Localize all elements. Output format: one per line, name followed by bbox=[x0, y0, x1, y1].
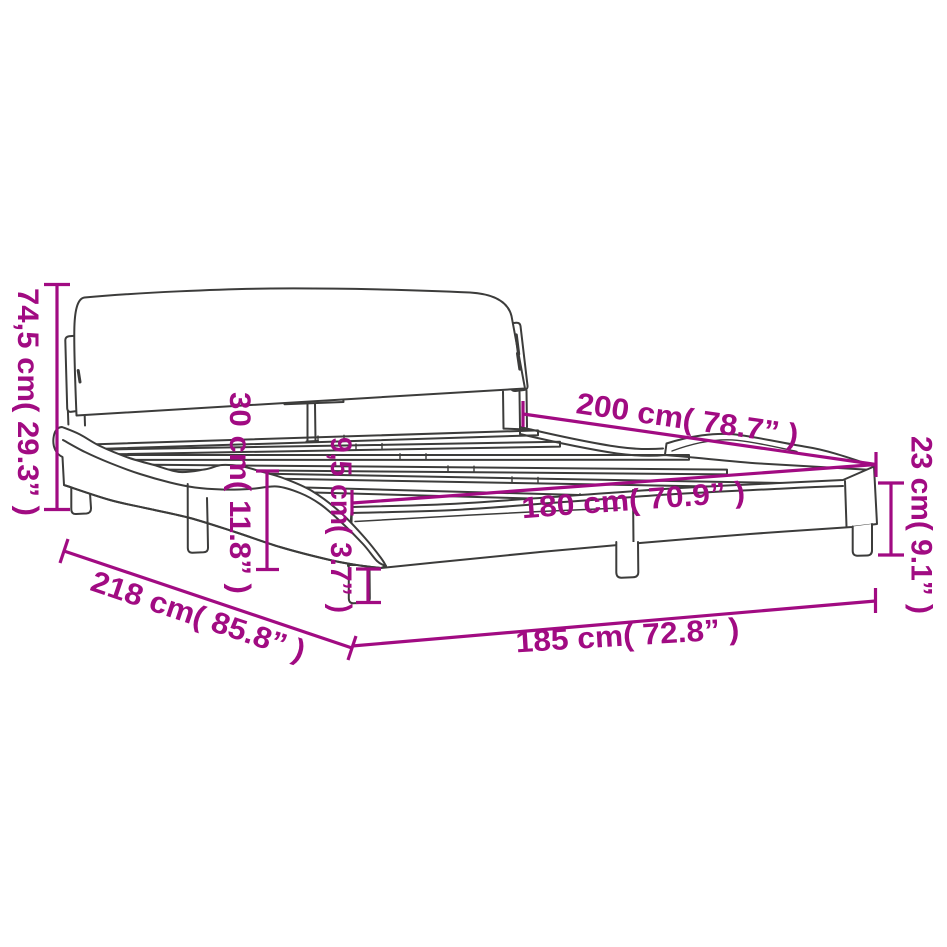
svg-text:185 cm( 72.8” ): 185 cm( 72.8” ) bbox=[515, 613, 741, 660]
svg-text:9,5 cm( 3.7” ): 9,5 cm( 3.7” ) bbox=[324, 437, 357, 613]
svg-text:23 cm( 9.1” ): 23 cm( 9.1” ) bbox=[905, 436, 938, 614]
svg-text:30 cm( 11.8” ): 30 cm( 11.8” ) bbox=[223, 392, 256, 594]
svg-text:200 cm( 78.7” ): 200 cm( 78.7” ) bbox=[574, 387, 800, 452]
svg-text:218 cm( 85.8” ): 218 cm( 85.8” ) bbox=[87, 565, 310, 668]
svg-text:74,5 cm( 29.3” ): 74,5 cm( 29.3” ) bbox=[11, 288, 44, 516]
